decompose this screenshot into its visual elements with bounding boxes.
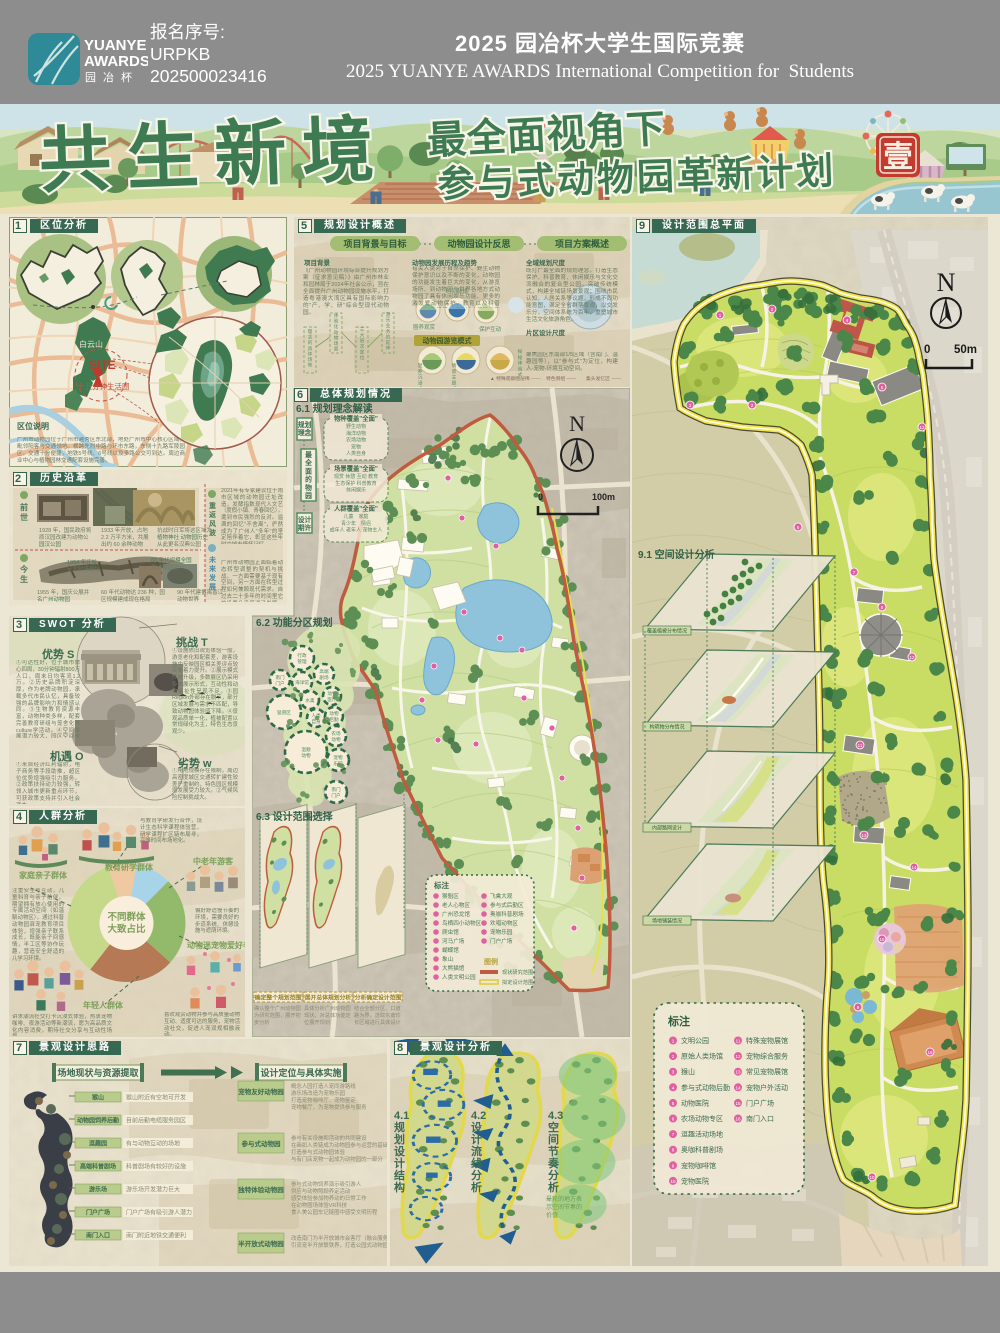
svg-text:理念: 理念: [298, 428, 312, 437]
svg-text:YUANYE: YUANYE: [84, 37, 147, 54]
svg-text:步分析: 步分析: [254, 1018, 270, 1026]
svg-text:广州恐龙馆: 广州恐龙馆: [442, 910, 470, 918]
svg-text:动物园游览模式: 动物园游览模式: [423, 336, 472, 345]
svg-text:农场: 农场: [331, 730, 341, 737]
svg-text:参与式动物后勤: 参与式动物后勤: [681, 1083, 730, 1092]
svg-text:爬虫馆: 爬虫馆: [442, 928, 459, 936]
svg-text:打造宠物咖啡厅、宠物鉴定: 打造宠物咖啡厅、宠物鉴定: [291, 1096, 356, 1104]
svg-text:在动物圈场体验VR科技: 在动物圈场体验VR科技: [291, 1201, 348, 1209]
svg-text:项目背景与目标: 项目背景与目标: [343, 238, 406, 249]
svg-text:高端科普剧场: 高端科普剧场: [80, 1163, 116, 1171]
svg-text:特殊宠物展馆: 特殊宠物展馆: [746, 1036, 788, 1045]
svg-text:11: 11: [736, 1039, 741, 1044]
svg-text:后勤: 后勤: [329, 716, 339, 723]
svg-text:12: 12: [735, 1054, 741, 1059]
svg-text:门户: 门户: [275, 680, 284, 687]
svg-text:农场动物专区: 农场动物专区: [681, 1114, 723, 1123]
svg-text:高端: 高端: [319, 668, 329, 675]
svg-text:半开放式动物园: 半开放式动物园: [238, 1239, 284, 1248]
svg-text:河马广场: 河马广场: [442, 937, 465, 945]
svg-text:AWARDS: AWARDS: [84, 53, 148, 70]
svg-text:科普剧场有较好的设施: 科普剧场有较好的设施: [126, 1163, 186, 1171]
svg-text:区位说明: 区位说明: [17, 421, 49, 431]
svg-text:内部路网设计: 内部路网设计: [652, 825, 682, 832]
svg-text:保护互动: 保护互动: [479, 325, 502, 333]
svg-text:食人美公园车记链圈中感受文明历程: 食人美公园车记链圈中感受文明历程: [291, 1208, 378, 1216]
svg-text:白云山: 白云山: [79, 339, 103, 349]
svg-text:海洋动物: 海洋动物: [346, 430, 366, 437]
svg-text:的: 的: [305, 475, 312, 484]
svg-text:游乐场改造为宠物乐园: 游乐场改造为宠物乐园: [291, 1089, 345, 1097]
svg-text:前: 前: [20, 502, 28, 512]
svg-text:参与式动物园: 参与式动物园: [242, 1139, 282, 1148]
svg-text:SITE: SITE: [89, 358, 116, 372]
svg-text:情: 情: [452, 362, 457, 369]
svg-text:大动物园之一: 大动物园之一: [151, 563, 185, 571]
svg-text:原始人类场馆: 原始人类场馆: [681, 1052, 723, 1061]
svg-text:出约 60 余种动物: 出约 60 余种动物: [101, 540, 144, 548]
svg-text:展开总体规划分析: 展开总体规划分析: [305, 994, 352, 1002]
svg-text:具体分析广州动物园: 具体分析广州动物园: [304, 1004, 351, 1012]
svg-text:宠物综合服务: 宠物综合服务: [746, 1052, 788, 1061]
svg-text:农场动物: 农场动物: [346, 437, 366, 444]
svg-text:10: 10: [670, 1179, 676, 1184]
svg-text:生态保护 科普教育: 生态保护 科普教育: [335, 480, 376, 487]
svg-text:猴魁区: 猴魁区: [442, 892, 459, 900]
svg-text:逗趣园: 逗趣园: [89, 1140, 107, 1148]
svg-text:今: 今: [19, 564, 28, 574]
svg-text:奥咖科普剧场: 奥咖科普剧场: [490, 910, 524, 918]
svg-text:剧场: 剧场: [319, 674, 329, 681]
svg-text:门户广场: 门户广场: [86, 1209, 110, 1217]
svg-text:展: 展: [208, 582, 217, 591]
svg-text:2.2 万平方米，共展: 2.2 万平方米，共展: [101, 533, 149, 541]
svg-text:15: 15: [735, 1101, 741, 1106]
svg-text:面: 面: [305, 467, 312, 475]
svg-text:设计: 设计: [298, 515, 312, 524]
svg-text:位展开规划: 位展开规划: [304, 1018, 330, 1026]
svg-text:全域规划尺度: 全域规划尺度: [525, 258, 566, 267]
svg-text:60 年代动物达 236 种，园: 60 年代动物达 236 种，园: [101, 588, 165, 596]
svg-text:休闲娱乐: 休闲娱乐: [346, 487, 366, 494]
svg-text:长区域进行具体设计: 长区域进行具体设计: [354, 1018, 401, 1026]
svg-text:人类自身: 人类自身: [346, 450, 366, 457]
svg-text:秘: 秘: [518, 354, 523, 361]
svg-text:游乐场: 游乐场: [89, 1186, 107, 1194]
svg-text:1955 年，国庆公展并: 1955 年，国庆公展并: [37, 588, 90, 596]
svg-text:教育研学群体: 教育研学群体: [104, 862, 154, 872]
svg-text:象山: 象山: [442, 955, 453, 963]
svg-text:常见宠物展馆: 常见宠物展馆: [746, 1067, 788, 1076]
svg-text:动物园设计反思: 动物园设计反思: [447, 238, 510, 249]
svg-text:打造参与式动物园体验: 打造参与式动物园体验: [291, 1148, 346, 1156]
svg-text:世: 世: [20, 512, 28, 522]
svg-text:场地现状与资源提取: 场地现状与资源提取: [57, 1067, 139, 1078]
svg-text:行政: 行政: [297, 652, 307, 659]
svg-text:宠物: 宠物: [333, 754, 343, 761]
svg-text:未: 未: [209, 555, 217, 564]
svg-text:1928 年，国民政府将: 1928 年，国民政府将: [39, 526, 92, 534]
svg-text:场景覆盖"全面": 场景覆盖"全面": [334, 464, 378, 473]
svg-text:人类文明公园: 人类文明公园: [442, 973, 476, 981]
svg-text:主: 主: [452, 374, 457, 381]
svg-text:概念人园打造人宠同游路线: 概念人园打造人宠同游路线: [291, 1082, 356, 1090]
svg-text:验: 验: [518, 365, 523, 372]
svg-text:风: 风: [209, 519, 216, 528]
svg-text:波: 波: [209, 528, 217, 537]
svg-text:抗战时日军将这区域为: 抗战时日军将这区域为: [157, 526, 212, 534]
svg-text:儿童 家庭: 儿童 家庭: [343, 513, 368, 520]
svg-text:覆盖植被分布情况: 覆盖植被分布情况: [647, 628, 687, 635]
svg-text:标注: 标注: [667, 1014, 690, 1028]
svg-text:猴山: 猴山: [681, 1067, 695, 1076]
svg-text:地: 地: [308, 362, 313, 368]
svg-text:从此更名汉典公园: 从此更名汉典公园: [157, 540, 202, 548]
svg-text:场地铺装情况: 场地铺装情况: [652, 918, 682, 925]
svg-text:宠物餐厅，为宠物提供参与服务: 宠物餐厅，为宠物提供参与服务: [291, 1103, 367, 1111]
svg-text:感受体验参加物养动的日常工作: 感受体验参加物养动的日常工作: [291, 1194, 367, 1202]
svg-text:园冶杯: 园冶杯: [85, 70, 139, 84]
svg-text:规划: 规划: [298, 420, 312, 429]
svg-text:最: 最: [305, 450, 312, 459]
svg-text:结合全部分区、口道: 结合全部分区、口道: [354, 1004, 401, 1012]
svg-text:分析确定设计范围: 分析确定设计范围: [355, 994, 402, 1002]
svg-text:构筑物分布情况: 构筑物分布情况: [649, 724, 684, 731]
svg-text:参与有关设施和活动的共同建设: 参与有关设施和活动的共同建设: [291, 1134, 367, 1142]
svg-text:90 年代建番禺香江: 90 年代建番禺香江: [177, 588, 224, 596]
svg-text:伸: 伸: [386, 345, 391, 352]
svg-text:逗趣活动场地: 逗趣活动场地: [681, 1130, 723, 1139]
svg-text:观赏 休憩 互动 教育: 观赏 休憩 互动 教育: [334, 473, 378, 480]
svg-text:温顺: 温顺: [301, 746, 311, 753]
svg-text:参与式后勤区: 参与式后勤区: [490, 901, 524, 909]
svg-text:名广州动物园: 名广州动物园: [37, 595, 71, 603]
svg-text:大熊猫馆: 大熊猫馆: [442, 964, 465, 972]
svg-text:水禽: 水禽: [305, 697, 315, 704]
svg-text:确定整个规划范围: 确定整个规划范围: [255, 994, 302, 1002]
svg-text:宠物友好动物园: 宠物友好动物园: [238, 1087, 284, 1096]
svg-text:蝴蝶馆: 蝴蝶馆: [442, 946, 459, 954]
svg-text:动物: 动物: [329, 710, 339, 717]
svg-text:动物: 动物: [331, 736, 341, 743]
svg-text:门户广场有吸引游人潜力: 门户广场有吸引游人潜力: [126, 1209, 192, 1217]
svg-text:重: 重: [209, 501, 216, 510]
svg-text:南门附近地铁交通便利: 南门附近地铁交通便利: [126, 1232, 186, 1240]
svg-text:路为界，选取东南珍: 路为界，选取东南珍: [354, 1011, 402, 1019]
svg-text:宠物咖啡馆: 宠物咖啡馆: [681, 1161, 716, 1170]
svg-text:游乐场开发潜力巨大: 游乐场开发潜力巨大: [126, 1186, 180, 1194]
svg-text:改造南门为半开放城市会客厅（融合服务、展示、休憩: 改造南门为半开放城市会客厅（融合服务、展示、休憩: [291, 1234, 387, 1242]
svg-text:体: 体: [518, 360, 523, 367]
svg-text:浸: 浸: [418, 379, 423, 386]
svg-text:13: 13: [735, 1070, 741, 1075]
svg-text:位: 位: [360, 354, 365, 360]
svg-text:门户广场: 门户广场: [746, 1098, 774, 1107]
svg-text:管理: 管理: [297, 658, 307, 665]
svg-text:圈养观赏: 圈养观赏: [413, 323, 436, 331]
svg-text:发: 发: [208, 573, 217, 582]
svg-text:期许: 期许: [298, 523, 312, 532]
svg-text:中老年游客: 中老年游客: [193, 856, 234, 866]
svg-text:南门: 南门: [331, 786, 341, 793]
svg-text:标注: 标注: [433, 880, 449, 890]
svg-text:猴山附近有空地可开发: 猴山附近有空地可开发: [126, 1094, 186, 1102]
svg-text:设计定位与具体实施: 设计定位与具体实施: [260, 1067, 341, 1078]
svg-text:16: 16: [735, 1117, 741, 1122]
svg-text:猴山: 猴山: [91, 1094, 104, 1102]
svg-text:参与式动物饲养演示吸引游人: 参与式动物饲养演示吸引游人: [291, 1180, 362, 1188]
svg-text:引流宠半开放联铁界，打造公园式动物园: 引流宠半开放联铁界，打造公园式动物园: [291, 1241, 387, 1249]
svg-text:南门入口: 南门入口: [86, 1232, 110, 1240]
svg-text:大致占比: 大致占比: [107, 923, 146, 935]
svg-text:14: 14: [735, 1085, 741, 1090]
svg-text:不同群体: 不同群体: [107, 911, 146, 923]
svg-text:十五分钟生活圈: 十五分钟生活圈: [77, 381, 130, 391]
svg-text:全: 全: [304, 458, 312, 467]
svg-text:文明公园: 文明公园: [681, 1036, 709, 1045]
svg-text:门户广场: 门户广场: [490, 937, 513, 945]
svg-text:养: 养: [418, 368, 423, 375]
svg-text:供应与动物照顾养定活动: 供应与动物照顾养定活动: [291, 1187, 351, 1195]
svg-text:宠物医院: 宠物医院: [681, 1176, 709, 1185]
svg-text:来: 来: [208, 564, 217, 573]
svg-text:返: 返: [209, 510, 216, 519]
svg-text:野生动物: 野生动物: [346, 423, 366, 430]
svg-text:鸟栖四小动物区: 鸟栖四小动物区: [442, 919, 482, 927]
svg-text:混: 混: [418, 362, 423, 369]
svg-text:现状研究范围: 现状研究范围: [502, 968, 533, 976]
svg-text:园汉公园: 园汉公园: [39, 540, 62, 548]
svg-text:动物: 动物: [301, 752, 311, 759]
svg-text:为研究范围，展开初: 为研究范围，展开初: [254, 1011, 301, 1019]
svg-text:1954 年迁址: 1954 年迁址: [67, 558, 98, 566]
svg-text:物: 物: [305, 483, 312, 492]
svg-text:南门: 南门: [275, 674, 285, 681]
svg-text:壹: 壹: [883, 141, 913, 174]
svg-text:植物神社 动物园历史: 植物神社 动物园历史: [157, 533, 209, 541]
svg-text:南门入口: 南门入口: [746, 1114, 774, 1123]
svg-text:宠物户外活动: 宠物户外活动: [746, 1083, 788, 1092]
svg-text:人群覆盖"全面": 人群覆盖"全面": [334, 504, 378, 513]
svg-text:独特体验动物园: 独特体验动物园: [238, 1185, 284, 1194]
svg-text:宠物: 宠物: [351, 443, 361, 450]
svg-text:青少年 情侣: 青少年 情侣: [341, 520, 371, 527]
svg-text:确认整个广州动物园: 确认整个广州动物园: [254, 1004, 301, 1012]
svg-text:奥咖科普剧场: 奥咖科普剧场: [681, 1145, 723, 1154]
svg-text:动物医院: 动物医院: [681, 1098, 709, 1107]
svg-text:原汉园改建为动物公: 原汉园改建为动物公: [39, 533, 89, 541]
svg-text:项目背景: 项目背景: [304, 258, 331, 267]
svg-text:年轻人群体: 年轻人群体: [83, 1000, 124, 1010]
svg-text:拟定设计范围: 拟定设计范围: [502, 978, 533, 986]
svg-text:探: 探: [518, 348, 523, 355]
svg-text:与有门店宠物一起成为动物园的一部分: 与有门店宠物一起成为动物园的一部分: [291, 1155, 383, 1163]
svg-text:题: 题: [452, 380, 457, 386]
svg-text:动物世界: 动物世界: [177, 595, 200, 603]
svg-text:区规模建成现在格局: 区规模建成现在格局: [101, 595, 151, 603]
svg-text:家庭亲子群体: 家庭亲子群体: [19, 870, 68, 880]
svg-text:老人心物区: 老人心物区: [442, 901, 470, 909]
svg-text:宠物乐园: 宠物乐园: [490, 928, 513, 936]
svg-text:至北较场现址: 至北较场现址: [67, 565, 101, 573]
svg-text:在画如人类链成为动物园参与运营的基础: 在画如人类链成为动物园参与运营的基础: [291, 1141, 387, 1149]
svg-text:60 年代规模全国: 60 年代规模全国: [151, 556, 192, 564]
svg-text:园: 园: [305, 491, 312, 500]
svg-text:图例: 图例: [484, 957, 498, 966]
svg-text:生: 生: [20, 574, 28, 584]
svg-text:有与动物互动的场地: 有与动物互动的场地: [126, 1140, 180, 1148]
svg-text:飞禽大观: 飞禽大观: [490, 892, 513, 900]
svg-text:景: 景: [452, 369, 457, 375]
svg-text:目前后勤电缆服务园区: 目前后勤电缆服务园区: [126, 1117, 186, 1125]
svg-text:动物园饲养后勤: 动物园饲养后勤: [77, 1117, 119, 1125]
svg-text:欢唱动物区: 欢唱动物区: [490, 919, 518, 927]
svg-text:海洋馆: 海洋馆: [295, 679, 309, 686]
svg-text:现状，对总体功能定: 现状，对总体功能定: [304, 1011, 351, 1019]
svg-text:1933 年开放，占地: 1933 年开放，占地: [101, 526, 148, 534]
svg-text:项目方案概述: 项目方案概述: [555, 238, 609, 249]
svg-text:成年人 老年人 宠物主人: 成年人 老年人 宠物主人: [330, 527, 383, 534]
svg-text:猛兽区: 猛兽区: [277, 709, 291, 716]
svg-text:门户: 门户: [331, 792, 340, 799]
svg-text:沉: 沉: [418, 374, 423, 381]
